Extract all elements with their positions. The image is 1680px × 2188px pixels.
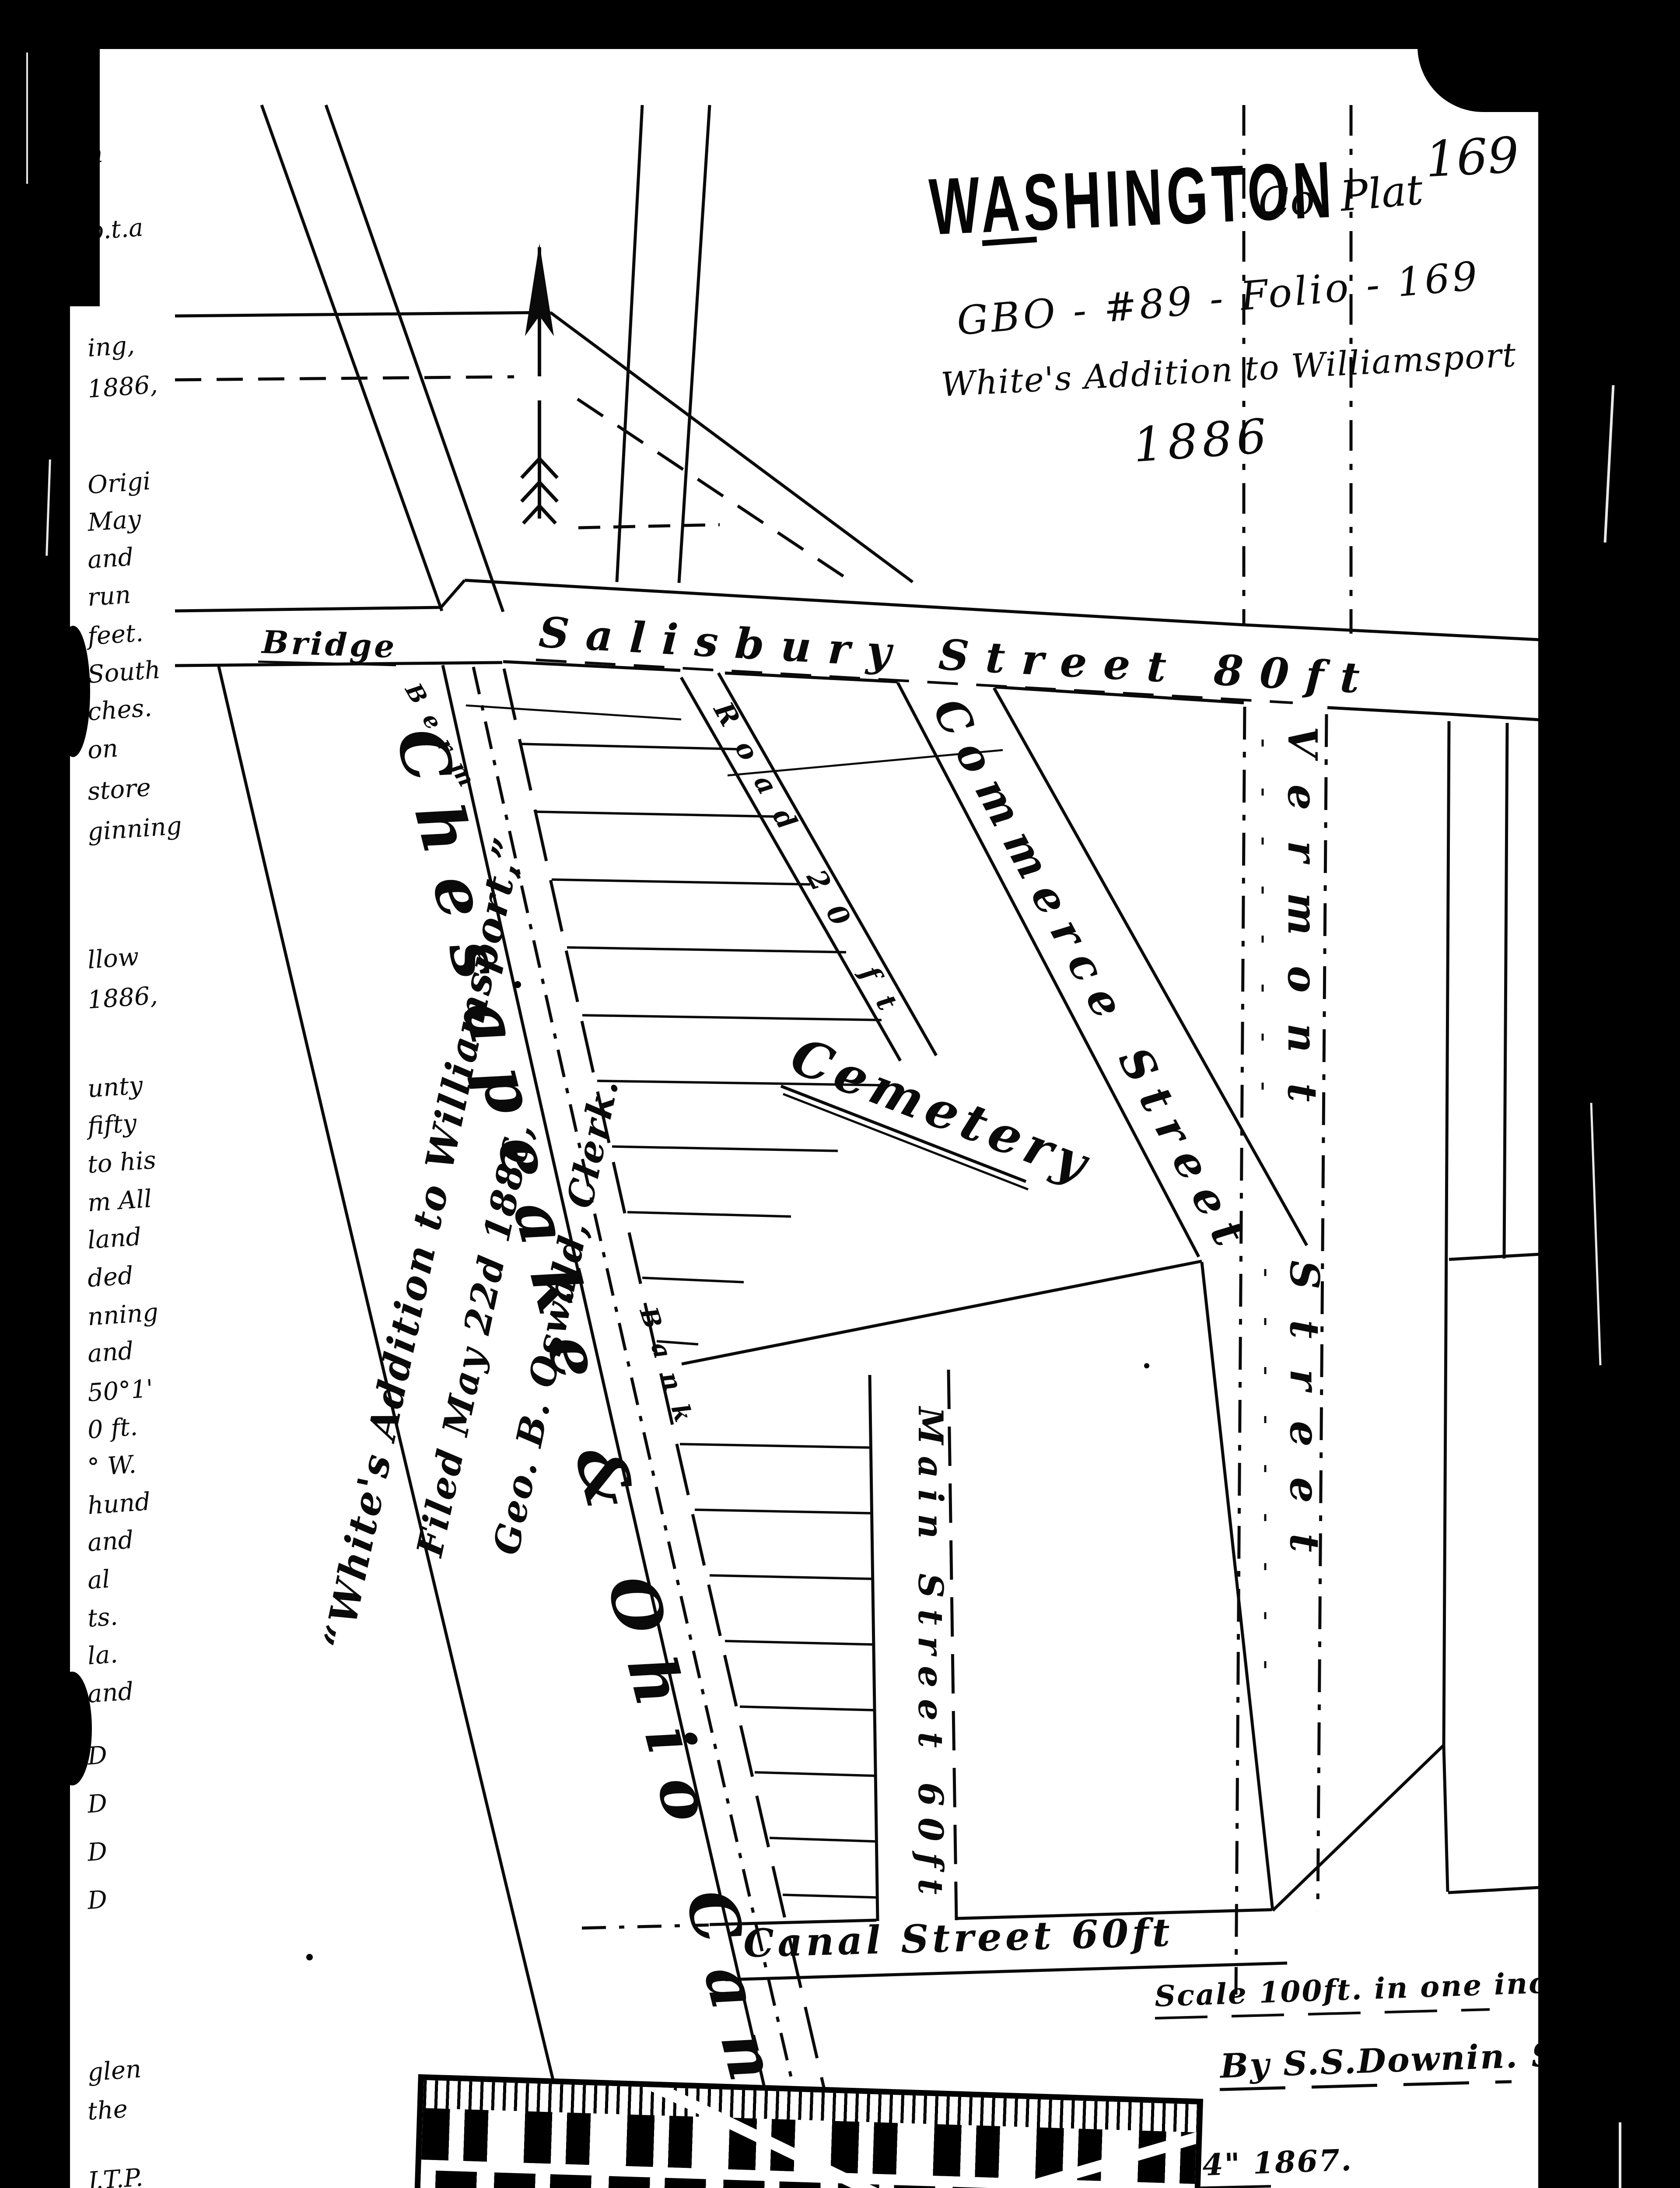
margin-fragment: and bbox=[87, 1336, 135, 1368]
margin-fragment: ches. bbox=[87, 694, 153, 726]
block-line bbox=[1448, 1887, 1541, 1893]
margin-fragment: and bbox=[87, 1525, 135, 1557]
margin-fragment: la. bbox=[87, 1640, 119, 1671]
block-line bbox=[1273, 1745, 1444, 1911]
north-arrow-icon bbox=[521, 243, 557, 523]
street-line-salisbury bbox=[1327, 708, 1449, 714]
margin-fragment: land bbox=[87, 1223, 142, 1255]
margin-fragment: 1886, bbox=[87, 981, 158, 1014]
street-label-bridge: Bridge bbox=[260, 623, 397, 665]
scale-note-line1: Scale 100ft. in one inch. bbox=[1154, 1964, 1582, 2013]
corner-page-number: 169 bbox=[1424, 126, 1520, 188]
margin-fragment: J.T.P. bbox=[87, 2163, 144, 2188]
ink-speck bbox=[306, 1954, 313, 1960]
film-scratch bbox=[26, 53, 28, 184]
margin-fragment: D bbox=[87, 1789, 108, 1819]
scanned-plat-document: Bridge Salisbury Street 80ft Commerce St… bbox=[0, 0, 1680, 2188]
margin-fragment: fifty bbox=[87, 1109, 137, 1141]
film-border-left bbox=[0, 0, 70, 2188]
ink-speck bbox=[514, 981, 521, 988]
margin-fragment: South bbox=[87, 656, 161, 689]
block-line bbox=[1202, 1262, 1273, 1911]
margin-fragment: run bbox=[87, 581, 132, 612]
block-line bbox=[1444, 1746, 1448, 1892]
ink-speck bbox=[1144, 1363, 1149, 1368]
margin-fragment: 0 ft. bbox=[87, 1413, 139, 1445]
margin-fragment: May bbox=[87, 505, 142, 537]
street-line-salisbury bbox=[1245, 625, 1541, 640]
margin-fragment: the bbox=[87, 2095, 129, 2126]
margin-fragment: on bbox=[87, 734, 119, 765]
film-scratch bbox=[1619, 2122, 1621, 2188]
cemetery-label: Cemetery bbox=[783, 1026, 1100, 1195]
road-line bbox=[550, 312, 913, 582]
margin-fragment: D bbox=[87, 1837, 108, 1867]
margin-fragment: glen bbox=[87, 2055, 142, 2087]
margin-fragment: D bbox=[87, 1886, 108, 1915]
margin-fragment: and bbox=[87, 1677, 135, 1708]
plat-map-svg: Bridge Salisbury Street 80ft Commerce St… bbox=[0, 0, 1680, 2188]
margin-fragment: feet. bbox=[87, 619, 144, 651]
margin-fragment: ts. bbox=[87, 1602, 119, 1633]
film-blemish bbox=[52, 1672, 92, 1785]
street-line-salisbury bbox=[1449, 714, 1541, 720]
block-line bbox=[1444, 721, 1449, 1746]
street-label-vermont: Vermont bbox=[1279, 726, 1326, 1133]
block-line bbox=[1504, 723, 1507, 1259]
block-line bbox=[175, 377, 514, 380]
film-edge-ragged bbox=[69, 0, 100, 306]
margin-fragment: ded bbox=[87, 1261, 134, 1293]
margin-fragment: hund bbox=[87, 1487, 151, 1520]
margin-fragment: store bbox=[87, 773, 152, 806]
plat-year: 1886 bbox=[1131, 409, 1273, 473]
street-line-vermont bbox=[1236, 707, 1245, 1995]
street-line-main bbox=[870, 1375, 878, 1921]
block-line bbox=[175, 312, 550, 316]
road-line bbox=[679, 105, 710, 583]
margin-fragment: 50°1' bbox=[87, 1375, 154, 1407]
street-label-commerce: Commerce Street bbox=[923, 690, 1262, 1266]
road-label: Road 20 ft bbox=[707, 696, 914, 1034]
margin-fragment: unty bbox=[87, 1071, 144, 1104]
film-blemish bbox=[56, 626, 90, 757]
street-label-salisbury: Salisbury Street 80ft bbox=[538, 607, 1378, 704]
margin-fragment: m All bbox=[87, 1185, 153, 1217]
margin-fragment: 1886, bbox=[87, 370, 158, 403]
margin-fragment: llow bbox=[87, 943, 140, 975]
street-label-main: Main Street 60ft bbox=[910, 1406, 950, 1906]
margin-fragment: ° W. bbox=[87, 1450, 137, 1482]
road-20ft-line bbox=[681, 677, 900, 1061]
road-line bbox=[617, 105, 642, 582]
street-label-vermont-street: Street bbox=[1281, 1260, 1328, 1583]
block-line bbox=[578, 525, 720, 528]
block-line bbox=[466, 705, 681, 719]
bank-label: Bank bbox=[633, 1303, 703, 1440]
film-border-top bbox=[0, 0, 1680, 49]
street-label-canal-street: Canal Street 60ft bbox=[743, 1909, 1174, 1966]
block-line bbox=[682, 1261, 1202, 1364]
margin-fragment: and bbox=[87, 543, 135, 574]
block-line bbox=[1449, 1254, 1541, 1259]
margin-fragment: to his bbox=[87, 1146, 157, 1179]
margin-fragment: ing, bbox=[87, 331, 136, 362]
margin-fragment: nning bbox=[87, 1298, 159, 1331]
film-border-right bbox=[1538, 0, 1680, 2188]
street-line-salisbury bbox=[441, 580, 465, 607]
margin-fragment: al bbox=[87, 1565, 111, 1595]
margin-fragment: Origi bbox=[87, 467, 152, 500]
street-line-salisbury bbox=[175, 607, 441, 611]
